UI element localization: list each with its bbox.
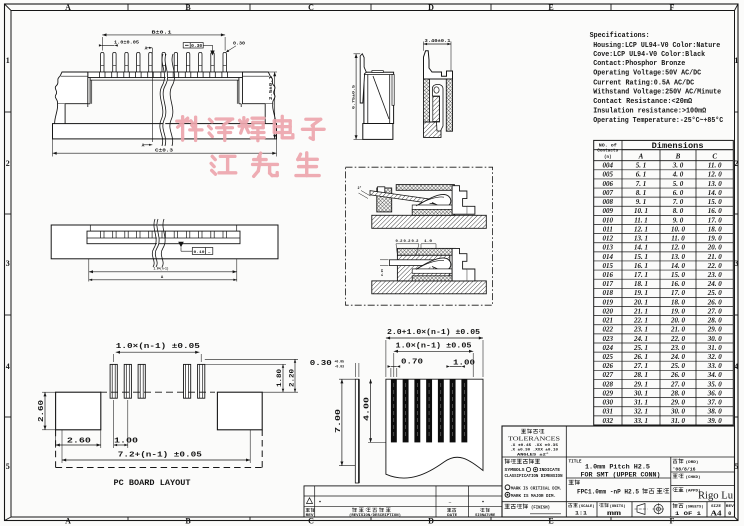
svg-text:.X ±0.30 .XXX ±0.10: .X ±0.30 .XXX ±0.10 (510, 449, 559, 453)
svg-text:TOLERANCES: TOLERANCES (508, 436, 560, 443)
svg-text:027: 027 (603, 371, 614, 379)
svg-text:7. 0: 7. 0 (673, 198, 684, 206)
svg-text:005: 005 (603, 171, 614, 179)
svg-text:Housing:LCP UL94-V0 Color:Natu: Housing:LCP UL94-V0 Color:Nature (593, 42, 720, 50)
svg-text:E: E (548, 3, 553, 12)
svg-text:32. 1: 32. 1 (633, 408, 648, 416)
svg-text:12. 1: 12. 1 (634, 225, 648, 233)
svg-text:0.30: 0.30 (191, 45, 203, 49)
svg-text:023: 023 (603, 335, 614, 343)
svg-text:010: 010 (603, 216, 614, 224)
svg-text:13. 0: 13. 0 (671, 253, 686, 261)
svg-text:011: 011 (603, 225, 613, 233)
svg-text:1 OF 1: 1 OF 1 (675, 511, 701, 517)
svg-text:(FINISH): (FINISH) (531, 505, 550, 510)
svg-text:33. 0: 33. 0 (707, 362, 723, 370)
svg-text:FOR SMT (UPPER CONN): FOR SMT (UPPER CONN) (581, 472, 661, 479)
svg-text:Withstand Voltage:250V AC/Minu: Withstand Voltage:250V AC/Minute (593, 88, 721, 96)
svg-text:017: 017 (603, 280, 614, 288)
svg-text:29. 1: 29. 1 (633, 380, 648, 388)
svg-text:23. 0: 23. 0 (707, 271, 723, 279)
svg-text:18. 0: 18. 0 (671, 298, 686, 306)
svg-text:TITLE: TITLE (569, 460, 582, 465)
svg-text:28. 1: 28. 1 (633, 371, 648, 379)
svg-text:7. 1: 7. 1 (636, 180, 647, 188)
svg-text:0.70: 0.70 (401, 359, 423, 367)
svg-text:27. 0: 27. 0 (707, 307, 723, 315)
svg-text:4: 4 (6, 362, 10, 371)
svg-text:020: 020 (603, 307, 614, 315)
svg-text:029: 029 (603, 390, 614, 398)
svg-text:22. 0: 22. 0 (670, 335, 686, 343)
svg-text:1: 1 (734, 56, 738, 65)
svg-text:Insulation resistance:>100mΩ: Insulation resistance:>100mΩ (593, 107, 706, 115)
svg-text:Rigo Lu: Rigo Lu (698, 491, 733, 502)
svg-text:11. 0: 11. 0 (671, 235, 685, 243)
svg-text:0: 0 (728, 511, 731, 517)
svg-text:1.0×(n-1): 1.0×(n-1) (154, 266, 169, 271)
svg-text:025: 025 (603, 353, 614, 361)
svg-text:2.20: 2.20 (289, 369, 296, 387)
svg-text:Cove:LCP UL94-V0 Color:Black: Cove:LCP UL94-V0 Color:Black (593, 51, 705, 59)
svg-text:5. 1: 5. 1 (636, 162, 647, 170)
svg-text:F: F (670, 517, 675, 526)
svg-text:1.0×(n-1) ±0.05: 1.0×(n-1) ±0.05 (116, 343, 200, 351)
svg-text:NO. of: NO. of (599, 143, 618, 148)
svg-text:1: 1 (6, 56, 10, 65)
svg-text:24. 1: 24. 1 (633, 335, 648, 343)
svg-text:+0.05: +0.05 (335, 359, 345, 363)
svg-text:38. 0: 38. 0 (707, 408, 723, 416)
svg-text:16. 0: 16. 0 (708, 207, 723, 215)
svg-text:MARK IS MAJOR DIM.: MARK IS MAJOR DIM. (511, 493, 556, 499)
svg-text:17. 0: 17. 0 (671, 289, 686, 297)
svg-text:30. 1: 30. 1 (633, 390, 648, 398)
svg-text:8. 1: 8. 1 (636, 189, 647, 197)
svg-text:1.0±0.05: 1.0±0.05 (114, 41, 140, 45)
svg-text:32. 0: 32. 0 (707, 353, 723, 361)
svg-text:C: C (308, 3, 314, 12)
svg-text:.X ±0.45 .XX ±0.35: .X ±0.45 .XX ±0.35 (510, 444, 559, 448)
svg-text:31. 0: 31. 0 (707, 344, 723, 352)
svg-text:3: 3 (6, 259, 10, 268)
svg-text:6. 1: 6. 1 (636, 171, 647, 179)
svg-text:SIZE: SIZE (711, 505, 722, 509)
svg-text:(CHKD): (CHKD) (686, 475, 701, 480)
svg-text:34. 0: 34. 0 (707, 371, 723, 379)
svg-text:004: 004 (603, 162, 614, 170)
svg-text:6. 0: 6. 0 (673, 189, 684, 197)
svg-text:3. 0: 3. 0 (672, 162, 684, 170)
svg-text:0.10: 0.10 (194, 251, 206, 255)
svg-text:Contacts: Contacts (597, 149, 619, 153)
svg-text:014: 014 (603, 253, 614, 261)
svg-text:Operating Voltage:50V AC/DC: Operating Voltage:50V AC/DC (593, 70, 701, 78)
svg-text:012: 012 (603, 235, 614, 243)
svg-text:17. 1: 17. 1 (634, 271, 648, 279)
svg-text:2.0+1.0×(n-1) ±0.05: 2.0+1.0×(n-1) ±0.05 (387, 329, 481, 337)
svg-text:13. 0: 13. 0 (708, 180, 723, 188)
svg-text:'08/8/16: '08/8/16 (673, 467, 696, 473)
svg-text:26. 0: 26. 0 (707, 298, 723, 306)
svg-text:14. 1: 14. 1 (634, 244, 648, 252)
svg-text:0.30: 0.30 (233, 43, 246, 47)
svg-text:12. 0: 12. 0 (708, 171, 723, 179)
svg-text:DATE: DATE (447, 514, 457, 518)
svg-text:2.60: 2.60 (38, 400, 46, 422)
svg-text:20. 1: 20. 1 (633, 298, 648, 306)
svg-text:36. 0: 36. 0 (707, 390, 723, 398)
svg-text:25. 1: 25. 1 (633, 344, 648, 352)
svg-text:028: 028 (603, 380, 614, 388)
svg-text:F: F (670, 3, 675, 12)
svg-text:21. 1: 21. 1 (633, 307, 648, 315)
svg-text:(REVISION/DESCRIPTION): (REVISION/DESCRIPTION) (349, 513, 401, 518)
svg-text:ANGLES ±2°: ANGLES ±2° (517, 452, 549, 457)
svg-text:17. 0: 17. 0 (708, 216, 723, 224)
svg-text:(SHEETS): (SHEETS) (686, 505, 704, 510)
svg-text:6.75±0.5: 6.75±0.5 (353, 84, 357, 109)
svg-text:1.0×(n-1) ±0.05: 1.0×(n-1) ±0.05 (396, 343, 472, 351)
svg-text:0.2: 0.2 (404, 239, 411, 243)
svg-text:SYMBOLS: SYMBOLS (505, 468, 525, 473)
svg-text:A: A (145, 46, 148, 52)
svg-text:21. 0: 21. 0 (707, 253, 723, 261)
svg-text:30. 0: 30. 0 (707, 335, 723, 343)
svg-text:1:1: 1:1 (575, 511, 587, 517)
svg-text:31. 1: 31. 1 (633, 399, 648, 407)
svg-text:14. 0: 14. 0 (671, 262, 686, 270)
svg-text:7.00: 7.00 (335, 409, 343, 433)
svg-text:(SCALE): (SCALE) (579, 504, 595, 509)
svg-text:23. 0: 23. 0 (670, 344, 686, 352)
svg-text:14. 0: 14. 0 (708, 189, 723, 197)
svg-text:23. 1: 23. 1 (633, 326, 648, 334)
svg-text:19. 0: 19. 0 (671, 307, 686, 315)
svg-text:5: 5 (6, 462, 10, 471)
svg-text:10. 1: 10. 1 (634, 207, 648, 215)
svg-text:33. 1: 33. 1 (633, 417, 648, 425)
svg-text:0.2: 0.2 (396, 239, 403, 243)
svg-text:9. 0: 9. 0 (673, 216, 684, 224)
svg-text:35. 0: 35. 0 (707, 380, 723, 388)
svg-text:29. 0: 29. 0 (707, 326, 723, 334)
svg-text:15. 0: 15. 0 (708, 198, 723, 206)
svg-text:E: E (548, 517, 553, 526)
svg-text:-0.03: -0.03 (335, 364, 345, 368)
svg-text:022: 022 (603, 326, 614, 334)
svg-text:7.2+(n-1) ±0.05: 7.2+(n-1) ±0.05 (118, 451, 202, 459)
svg-text:Specifications:: Specifications: (590, 32, 650, 40)
svg-text:16. 1: 16. 1 (634, 262, 648, 270)
svg-text:C: C (712, 153, 717, 161)
svg-text:B: B (185, 517, 191, 526)
svg-text:Operating Temperature:-25°C~+8: Operating Temperature:-25°C~+85°C (593, 116, 723, 125)
svg-text:(DRD): (DRD) (686, 460, 699, 465)
svg-text:0.30: 0.30 (310, 360, 332, 368)
svg-text:REV: REV (306, 514, 315, 518)
svg-text:27. 1: 27. 1 (633, 362, 648, 370)
svg-text:2.5±0.1: 2.5±0.1 (270, 75, 274, 100)
svg-text:10. 0: 10. 0 (671, 225, 686, 233)
svg-text:024: 024 (603, 344, 614, 352)
svg-text:24. 0: 24. 0 (707, 280, 723, 288)
svg-text:21. 0: 21. 0 (670, 326, 686, 334)
svg-text:—: — (448, 502, 452, 506)
svg-text:032: 032 (603, 417, 614, 425)
svg-text:021: 021 (603, 317, 614, 325)
svg-text:A: A (142, 143, 145, 149)
svg-text:20. 0: 20. 0 (707, 244, 723, 252)
svg-text:mm: mm (607, 510, 622, 517)
svg-text:27. 0: 27. 0 (670, 380, 686, 388)
svg-text:39. 0: 39. 0 (707, 417, 723, 425)
svg-text:19. 1: 19. 1 (634, 289, 648, 297)
svg-text:0.2: 0.2 (412, 239, 419, 243)
svg-text:28. 0: 28. 0 (707, 317, 723, 325)
svg-text:(n): (n) (604, 155, 612, 160)
svg-text:PC BOARD LAYOUT: PC BOARD LAYOUT (114, 478, 191, 488)
svg-text:B: B (185, 3, 191, 12)
svg-text:11. 1: 11. 1 (634, 216, 648, 224)
svg-text:9. 1: 9. 1 (636, 198, 647, 206)
svg-text:1.00: 1.00 (114, 437, 138, 445)
svg-text:26. 1: 26. 1 (633, 353, 648, 361)
svg-text:26. 0: 26. 0 (670, 371, 686, 379)
svg-text:12. 0: 12. 0 (671, 244, 686, 252)
svg-text:18. 0: 18. 0 (708, 225, 723, 233)
svg-text:008: 008 (603, 198, 614, 206)
svg-text:Contact Resistance:<20mΩ: Contact Resistance:<20mΩ (593, 98, 692, 106)
svg-text:A4: A4 (711, 510, 723, 517)
svg-text:4.00: 4.00 (363, 397, 371, 421)
svg-text:C±0.3: C±0.3 (155, 147, 173, 153)
svg-text:A: A (638, 153, 644, 161)
svg-text:030: 030 (603, 399, 614, 407)
svg-text:A: A (65, 3, 71, 12)
svg-text:37. 0: 37. 0 (707, 399, 723, 407)
svg-text:20. 0: 20. 0 (670, 317, 686, 325)
svg-text:A: A (65, 517, 71, 526)
svg-text:28. 0: 28. 0 (670, 390, 686, 398)
svg-text:25. 0: 25. 0 (707, 289, 723, 297)
svg-text:1.0mm Pitch H2.5: 1.0mm Pitch H2.5 (585, 463, 650, 470)
svg-text:016: 016 (603, 271, 614, 279)
svg-text:Dimensions: Dimensions (652, 141, 704, 151)
svg-text:24. 0: 24. 0 (670, 353, 686, 361)
svg-text:INDICATE: INDICATE (539, 468, 560, 473)
svg-text:SIGNATURE: SIGNATURE (475, 514, 495, 518)
svg-text:31. 0: 31. 0 (670, 417, 686, 425)
svg-text:19. 0: 19. 0 (708, 235, 723, 243)
svg-text:25. 0: 25. 0 (670, 362, 686, 370)
svg-text:2.60: 2.60 (67, 437, 91, 445)
svg-text:2: 2 (734, 159, 738, 168)
svg-text:0.15: 0.15 (381, 269, 384, 276)
svg-text:3.40±0.1: 3.40±0.1 (425, 40, 452, 44)
svg-text:13. 1: 13. 1 (634, 235, 648, 243)
svg-text:29. 0: 29. 0 (670, 399, 686, 407)
svg-text:30. 0: 30. 0 (670, 408, 686, 416)
svg-text:CLASSIFICATION DIMENSION: CLASSIFICATION DIMENSION (505, 474, 563, 479)
svg-text:D: D (428, 3, 434, 12)
svg-text:1.80: 1.80 (276, 369, 283, 387)
svg-text:2°: 2° (357, 186, 361, 191)
svg-text:009: 009 (603, 207, 614, 215)
svg-text:3: 3 (734, 259, 738, 268)
svg-text:22. 0: 22. 0 (707, 262, 723, 270)
svg-text:026: 026 (603, 362, 614, 370)
svg-text:4: 4 (734, 362, 738, 371)
svg-text:8. 0: 8. 0 (673, 207, 684, 215)
svg-text:D: D (428, 517, 434, 526)
svg-text:18. 1: 18. 1 (634, 280, 648, 288)
svg-text:(UNITS): (UNITS) (610, 504, 626, 509)
svg-text:018: 018 (603, 289, 614, 297)
svg-text:4. 0: 4. 0 (672, 171, 684, 179)
svg-text:15. 0: 15. 0 (671, 271, 686, 279)
svg-text:16. 0: 16. 0 (671, 280, 686, 288)
svg-text:Current Rating:0.5A AC/DC: Current Rating:0.5A AC/DC (593, 79, 694, 87)
svg-text:REV: REV (726, 505, 735, 509)
svg-text:MARK IS CRITICAL DIM.: MARK IS CRITICAL DIM. (511, 486, 562, 492)
svg-text:2: 2 (6, 159, 10, 168)
svg-text:Contact:Phosphor Bronze: Contact:Phosphor Bronze (593, 60, 685, 68)
svg-text:B: B (675, 153, 681, 161)
svg-text:22. 1: 22. 1 (633, 317, 648, 325)
svg-text:15. 1: 15. 1 (634, 253, 648, 261)
svg-text:015: 015 (603, 262, 614, 270)
svg-text:007: 007 (603, 189, 614, 197)
svg-text:FPC1.0mm -nP H2.5: FPC1.0mm -nP H2.5 (577, 489, 639, 496)
svg-text:B±0.1: B±0.1 (152, 29, 172, 35)
svg-text:5. 0: 5. 0 (673, 180, 684, 188)
svg-text:013: 013 (603, 244, 614, 252)
svg-text:11. 0: 11. 0 (708, 162, 722, 170)
svg-text:031: 031 (603, 408, 614, 416)
svg-text:019: 019 (603, 298, 614, 306)
svg-text:006: 006 (603, 180, 614, 188)
